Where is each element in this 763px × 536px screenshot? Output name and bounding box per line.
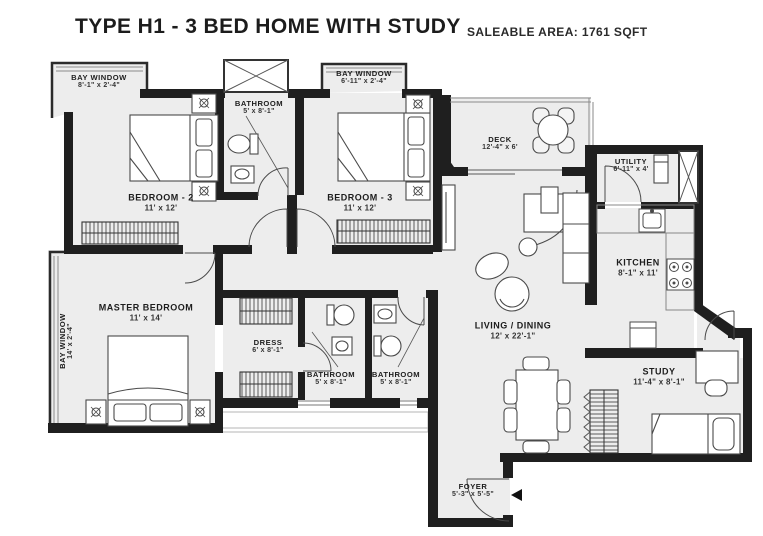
room-label-dress: DRESS 6' x 8'-1" bbox=[252, 338, 283, 356]
room-label-bay-window-master: BAY WINDOW 14' x 2'-4" bbox=[58, 313, 76, 369]
room-label-living-dining: LIVING / DINING 12' x 22'-1" bbox=[475, 320, 552, 341]
floorplan-canvas: TYPE H1 - 3 BED HOME WITH STUDY SALEABLE… bbox=[0, 0, 763, 536]
room-label-study: STUDY 11'-4" x 8'-1" bbox=[633, 366, 685, 387]
shaft-utility bbox=[679, 151, 698, 203]
entrance-arrow bbox=[511, 489, 522, 501]
room-label-bedroom-3: BEDROOM - 3 11' x 12' bbox=[327, 192, 393, 213]
room-label-bathroom-3: BATHROOM 5' x 8'-1" bbox=[372, 370, 420, 388]
room-label-bedroom-2: BEDROOM - 2 11' x 12' bbox=[128, 192, 194, 213]
room-label-master-bedroom: MASTER BEDROOM 11' x 14' bbox=[99, 302, 194, 323]
room-label-utility: UTILITY 6'-11" x 4' bbox=[613, 157, 648, 175]
page-title: TYPE H1 - 3 BED HOME WITH STUDY bbox=[75, 15, 461, 39]
room-label-bathroom-2: BATHROOM 5' x 8'-1" bbox=[307, 370, 355, 388]
room-label-bathroom-1: BATHROOM 5' x 8'-1" bbox=[235, 99, 283, 117]
room-label-bay-window-1: BAY WINDOW 8'-1" x 2'-4" bbox=[71, 73, 127, 91]
saleable-area-label: SALEABLE AREA: 1761 SQFT bbox=[467, 25, 648, 39]
room-label-kitchen: KITCHEN 8'-1" x 11' bbox=[616, 257, 660, 278]
furniture-utility bbox=[654, 155, 668, 183]
room-label-bay-window-2: BAY WINDOW 6'-11" x 2'-4" bbox=[336, 69, 392, 87]
room-label-deck: DECK 12'-4" x 6' bbox=[482, 135, 518, 153]
exterior-ledge bbox=[222, 412, 428, 432]
furniture-bedroom-3 bbox=[337, 95, 430, 243]
room-label-foyer: FOYER 5'-3" x 5'-5" bbox=[452, 482, 494, 500]
shaft-top bbox=[224, 60, 288, 92]
